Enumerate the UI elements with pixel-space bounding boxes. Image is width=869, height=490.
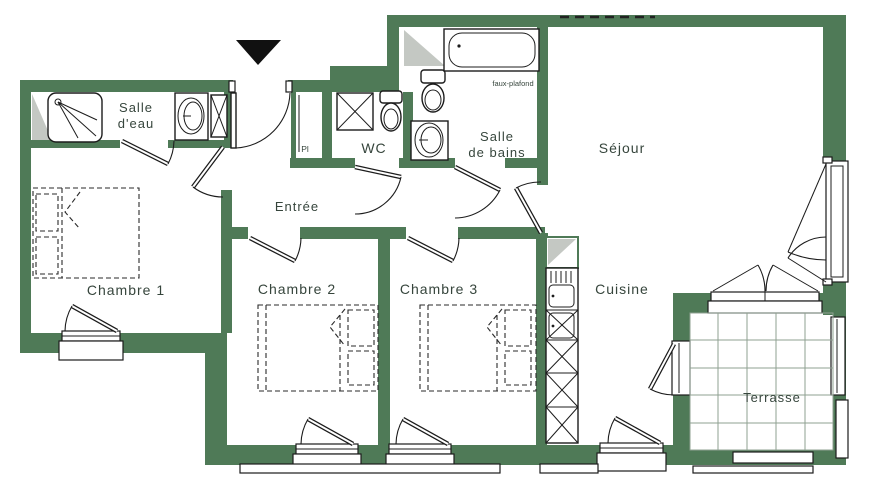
terrasse-ledge (693, 466, 813, 473)
label-sejour: Séjour (599, 140, 645, 156)
label-terrasse: Terrasse (743, 390, 801, 405)
terrasse-tiles (690, 313, 833, 450)
washbasin-salle-deau (175, 93, 208, 140)
bathtub (444, 29, 539, 71)
corner-shade-sdb (404, 30, 445, 66)
label-sdb-1: Salle (480, 129, 514, 144)
window-sejour-terrasse (708, 265, 822, 313)
door-sejour (516, 182, 541, 233)
front-door (229, 81, 292, 148)
floor-plan-svg: Salle d'eau WC Salle de bains faux-plafo… (0, 0, 869, 490)
label-entree: Entrée (275, 199, 319, 214)
bed-chambre2 (258, 305, 378, 391)
window-chambre1 (59, 306, 123, 360)
washbasin-sdb (411, 121, 448, 160)
bed-chambre1 (33, 188, 139, 278)
label-chambre3: Chambre 3 (400, 281, 478, 297)
label-salle-deau-1: Salle (119, 100, 153, 115)
door-chambre1 (193, 147, 223, 197)
windows (59, 157, 848, 473)
wc-cabinet (337, 93, 373, 130)
label-sdb-2: de bains (468, 145, 525, 160)
floor-plan: Salle d'eau WC Salle de bains faux-plafo… (0, 0, 869, 490)
window-cuisine (597, 418, 666, 471)
label-placard: Pl (301, 144, 309, 154)
label-salle-deau-2: d'eau (118, 116, 154, 131)
balcony-ledge-left (240, 464, 500, 473)
bed-chambre3 (420, 305, 536, 391)
door-salle-de-bains (455, 167, 500, 218)
balcony-ledge-mid (540, 464, 598, 473)
door-chambre2 (250, 238, 301, 261)
toilet-sdb (421, 70, 445, 112)
kitchen-counter (546, 268, 578, 443)
entrance-arrow-icon (236, 40, 281, 65)
utility-box (211, 95, 227, 137)
label-cuisine: Cuisine (595, 281, 649, 297)
label-faux-plafond: faux-plafond (492, 79, 533, 88)
label-chambre2: Chambre 2 (258, 281, 336, 297)
door-wc (355, 167, 401, 214)
door-salle-deau (122, 141, 174, 164)
window-sejour-right (788, 157, 848, 285)
window-terrasse-bottom (733, 452, 813, 463)
door-chambre3 (408, 238, 459, 261)
toilet-wc (380, 91, 402, 131)
shower (48, 93, 102, 142)
label-chambre1: Chambre 1 (87, 282, 165, 298)
label-wc: WC (361, 140, 386, 156)
door-terrasse (650, 341, 690, 395)
